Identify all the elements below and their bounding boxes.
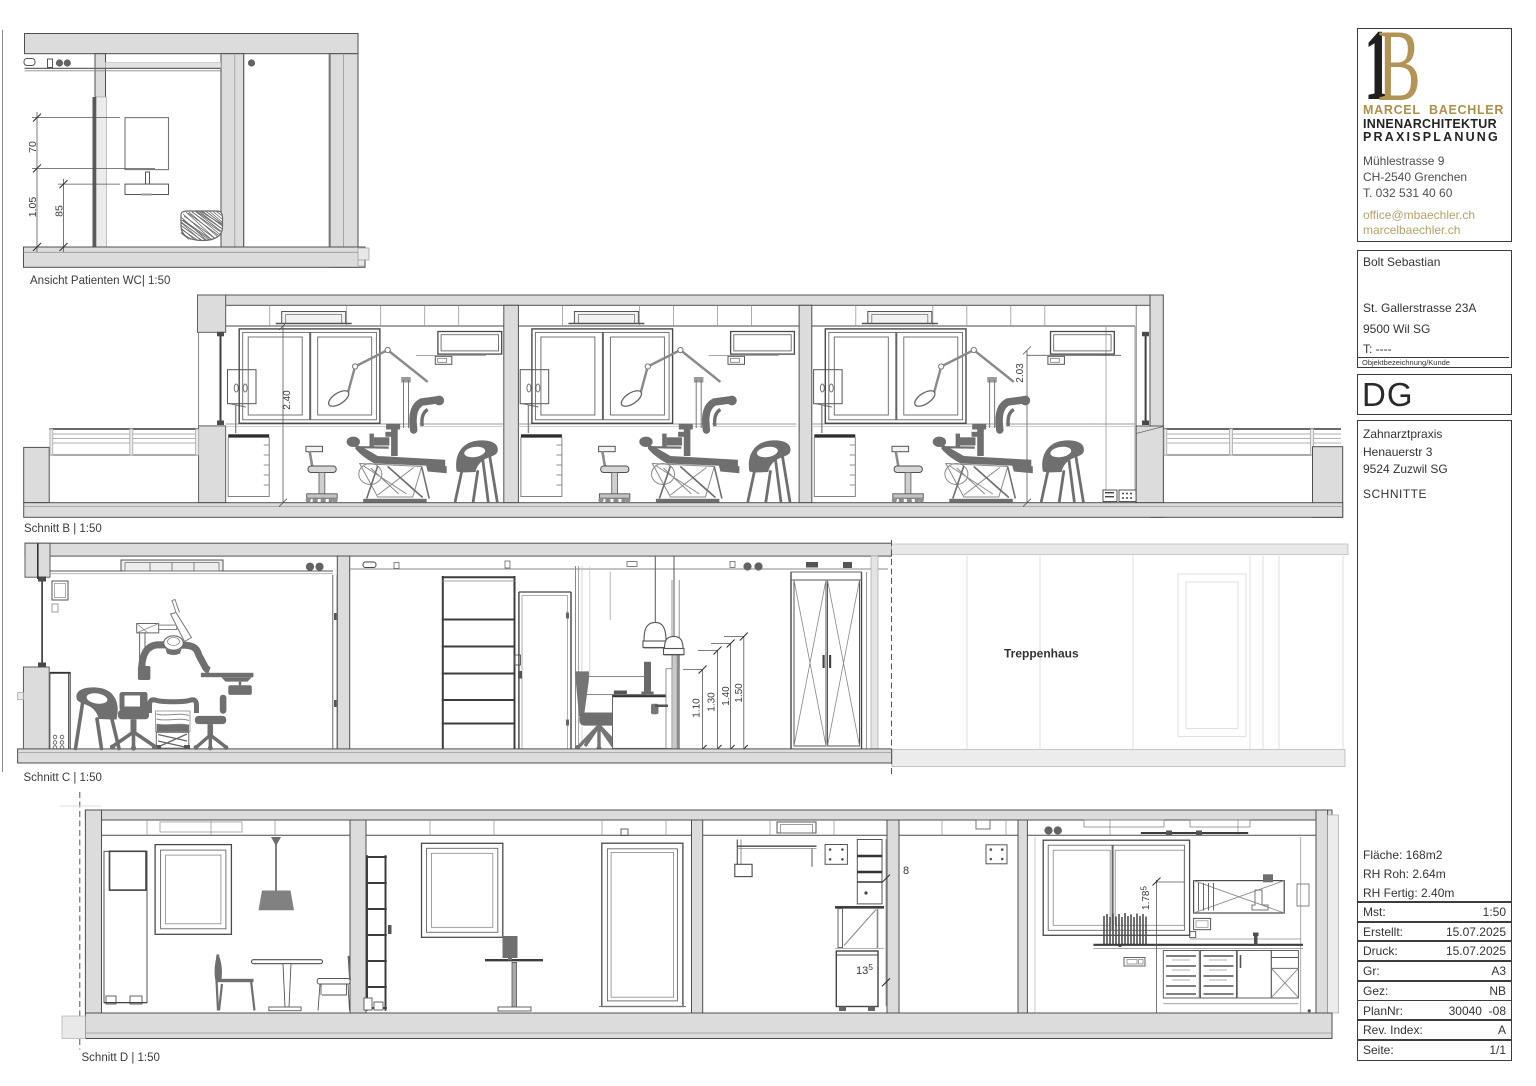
svg-text:8: 8 [903, 865, 909, 877]
svg-text:1.785: 1.785 [1139, 885, 1152, 909]
svg-text:1.10: 1.10 [692, 698, 703, 718]
svg-text:1.30: 1.30 [707, 692, 718, 712]
svg-text:1.05: 1.05 [27, 197, 39, 218]
svg-text:1.50: 1.50 [734, 683, 745, 703]
svg-text:85: 85 [54, 205, 66, 217]
svg-text:Treppenhaus: Treppenhaus [1004, 647, 1079, 661]
svg-text:Schnitt B | 1:50: Schnitt B | 1:50 [24, 523, 102, 535]
svg-text:Schnitt D | 1:50: Schnitt D | 1:50 [82, 1052, 160, 1064]
svg-text:70: 70 [27, 141, 39, 153]
svg-text:Ansicht Patienten WC| 1:50: Ansicht Patienten WC| 1:50 [30, 275, 170, 287]
svg-text:B: B [1378, 29, 1421, 109]
svg-text:2.03: 2.03 [1015, 363, 1026, 383]
svg-text:Schnitt C | 1:50: Schnitt C | 1:50 [24, 772, 102, 784]
svg-text:2.40: 2.40 [282, 390, 293, 410]
svg-text:1.40: 1.40 [721, 686, 732, 706]
